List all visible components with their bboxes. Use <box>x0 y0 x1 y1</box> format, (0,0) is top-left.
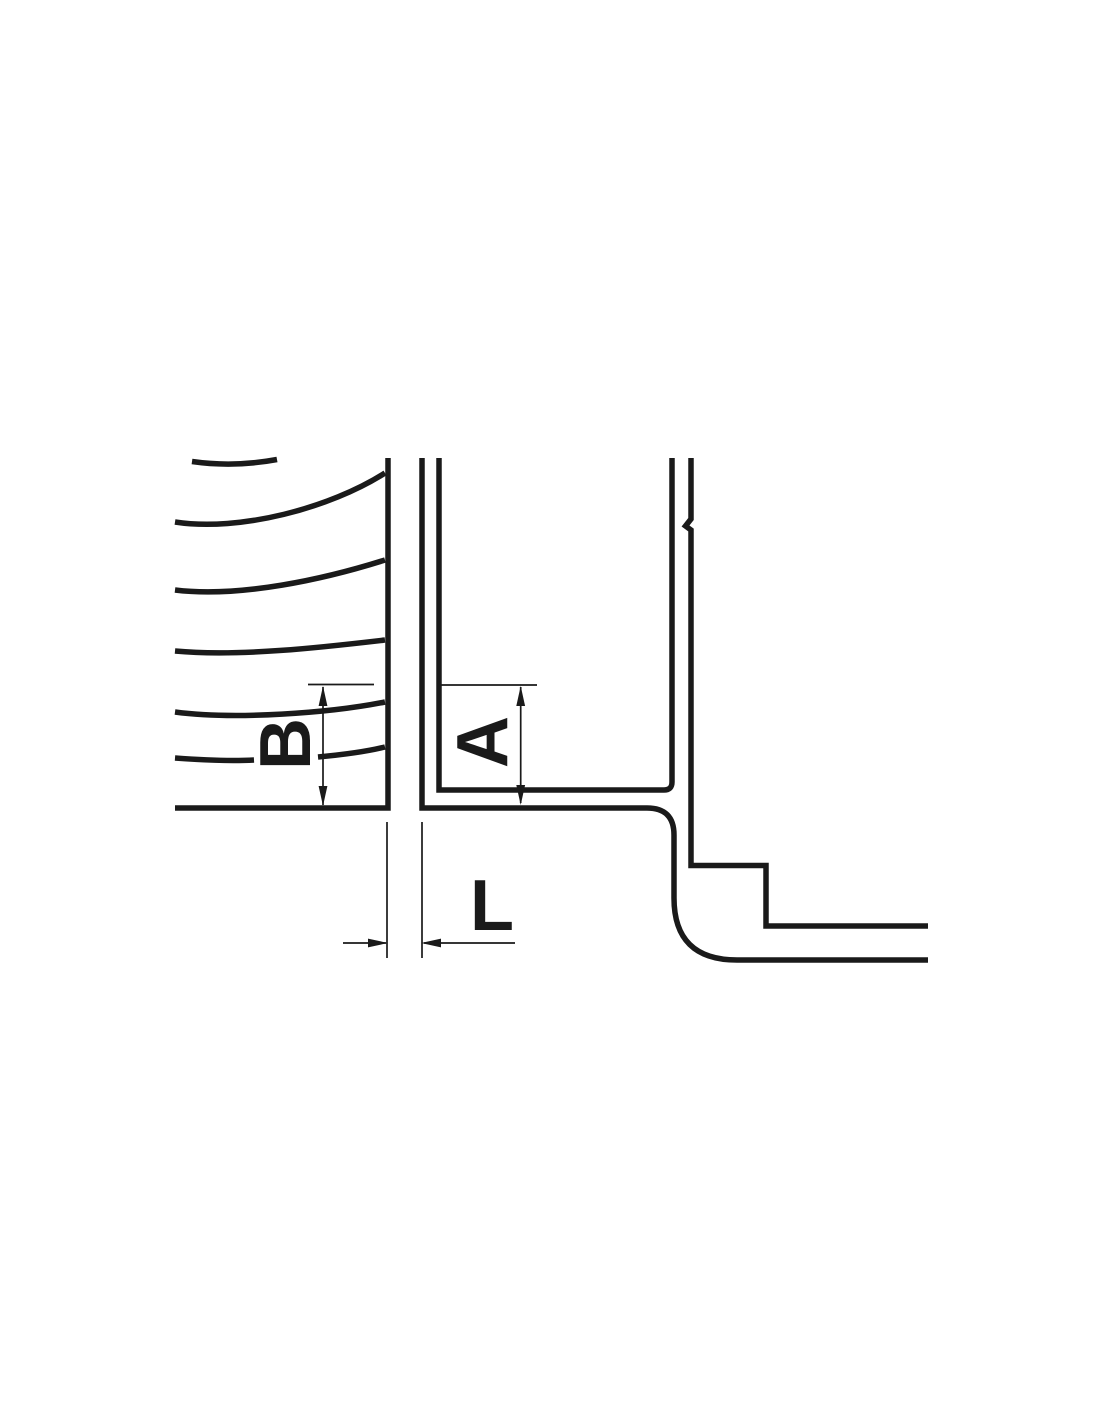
technical-drawing-page: B A L <box>0 0 1100 1422</box>
section-drawing: B A L <box>0 0 1100 1422</box>
flow-curve-4 <box>175 640 385 653</box>
dim-label-a: A <box>443 716 523 768</box>
dim-a-arrow-up-icon <box>516 686 525 706</box>
flow-curve-6-left <box>175 758 254 761</box>
dim-b-arrow-up-icon <box>319 686 328 706</box>
dim-l-arrow-left-icon <box>421 939 441 948</box>
flow-curve-1 <box>192 460 277 465</box>
flow-curve-6-right <box>318 747 385 757</box>
flow-curve-2 <box>175 473 385 524</box>
contour-lines <box>175 458 928 960</box>
dim-label-b: B <box>246 718 326 770</box>
dim-label-l: L <box>470 866 514 946</box>
dim-a-arrow-down-icon <box>516 785 525 805</box>
flow-curve-3 <box>175 560 385 592</box>
casing-right-wall-step <box>686 458 929 926</box>
flow-curve-5 <box>175 702 385 715</box>
dim-l-arrow-right-icon <box>368 939 388 948</box>
dim-b-arrow-down-icon <box>319 786 328 806</box>
